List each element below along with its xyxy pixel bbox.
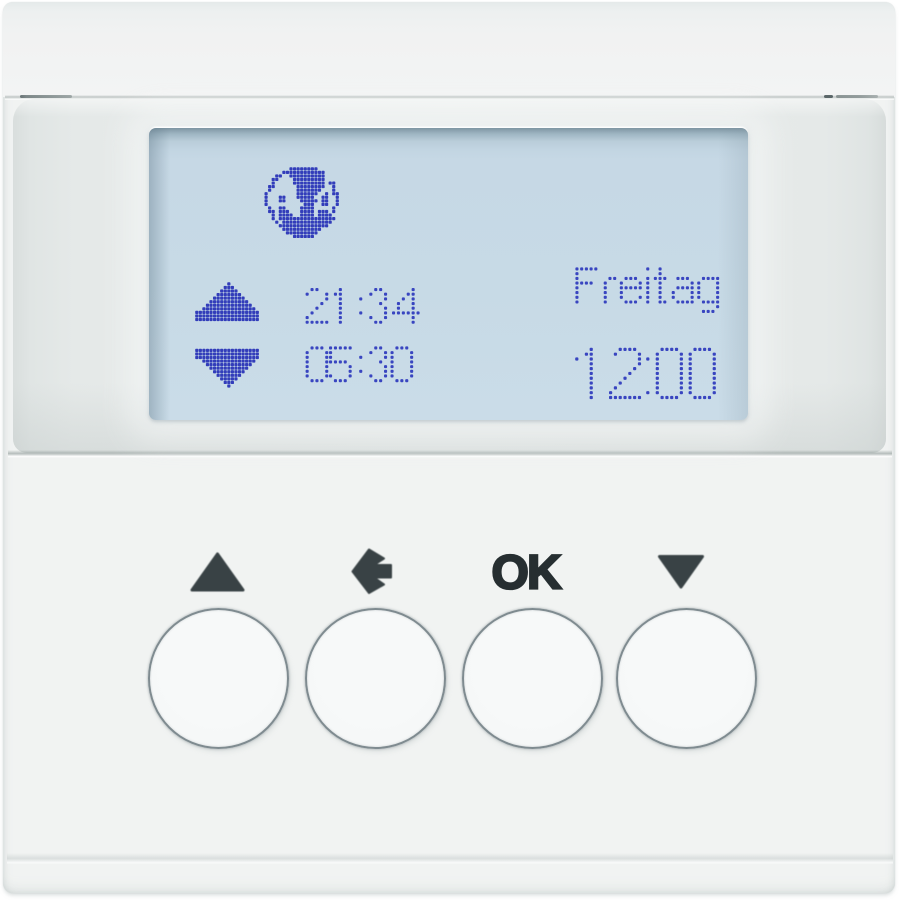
svg-text:OK: OK bbox=[492, 547, 563, 600]
